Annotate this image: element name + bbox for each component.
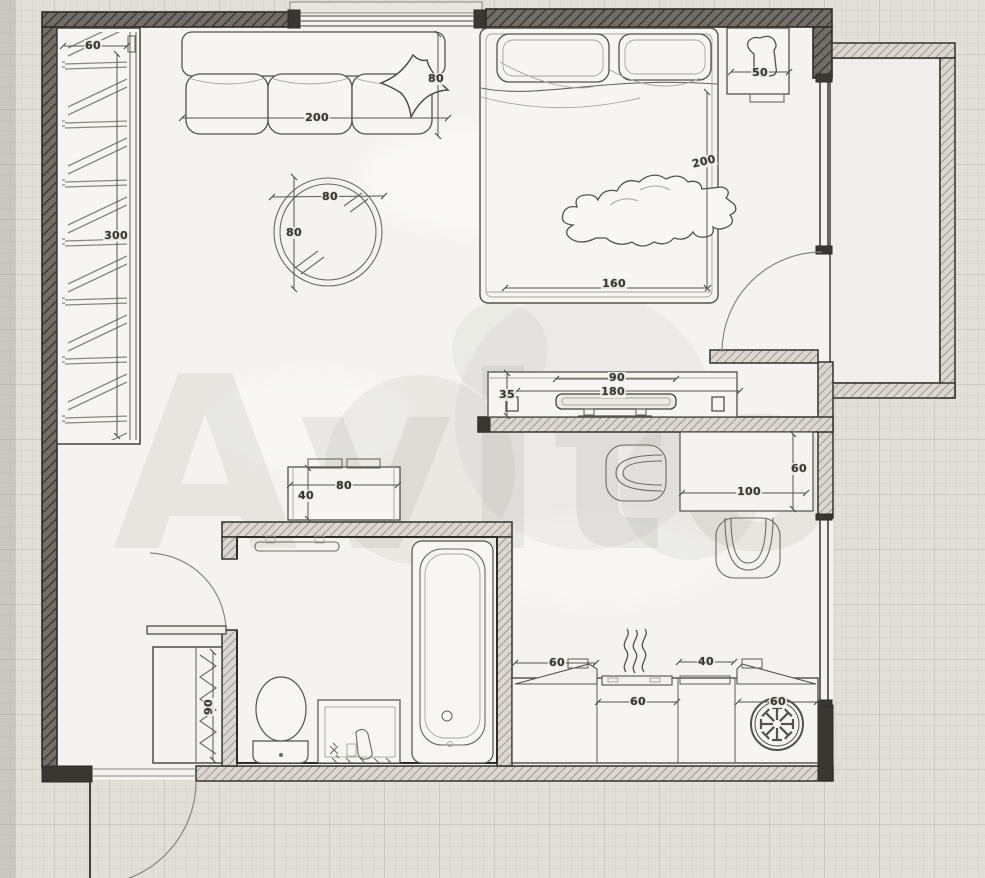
floor-plan: Avito [0,0,985,878]
balcony-wall-right [940,58,955,398]
dim-tv-stand-depth: 35 [498,389,516,401]
wall-bathroom-left-lower [222,630,237,766]
hob [602,676,672,685]
bathtub [412,541,493,763]
wall-tv-cap [478,417,490,432]
sink-cabinet [318,700,400,763]
dim-kitchen-base-center: 60 [629,696,647,708]
dim-kitchen-base-right: 60 [769,696,787,708]
dim-tv-width: 90 [608,372,626,384]
floor-plan-drawing: Avito [0,0,985,878]
balcony-wall-top [832,43,955,58]
dim-bed-width: 160 [601,278,627,290]
wall-top-right [486,9,832,27]
wall-corner-bottom-right [818,705,833,781]
dim-nightstand-width: 50 [751,67,769,79]
bathroom-door-leaf [147,626,226,634]
dim-table-height: 80 [285,227,303,239]
dim-kitchen-upper-right: 40 [697,656,715,668]
dim-wardrobe-length: 300 [103,230,129,242]
dim-desk-length: 100 [736,486,762,498]
dim-sofa-length: 200 [304,112,330,124]
wall-bedroom-bottom [710,350,818,363]
wall-right-middle [818,362,833,518]
wall-corner-bottom-left [42,766,92,782]
wall-bathroom-left-upper [222,537,237,559]
wall-step [813,27,832,78]
wall-bottom [196,766,833,781]
wall-left [42,27,57,768]
toilet [253,677,308,763]
dim-hallway-unit-length: 90 [203,698,215,716]
balcony-wall-bottom [830,383,955,398]
dim-dresser-depth: 40 [297,490,315,502]
dim-dresser-width: 80 [335,480,353,492]
wall-top-left [42,12,295,27]
wall-tv [478,417,833,432]
window-cap-left [288,10,300,28]
dim-kitchen-upper-left: 60 [548,657,566,669]
wall-bathroom-top [222,522,512,537]
wall-bathroom-right [497,537,512,766]
window-sill [290,2,482,13]
dim-tv-stand-length: 180 [600,386,626,398]
nightstand [727,28,789,102]
dim-wardrobe-depth: 60 [84,40,102,52]
dim-desk-depth: 60 [790,463,808,475]
dim-table-width: 80 [321,191,339,203]
dim-sofa-depth: 80 [427,73,445,85]
